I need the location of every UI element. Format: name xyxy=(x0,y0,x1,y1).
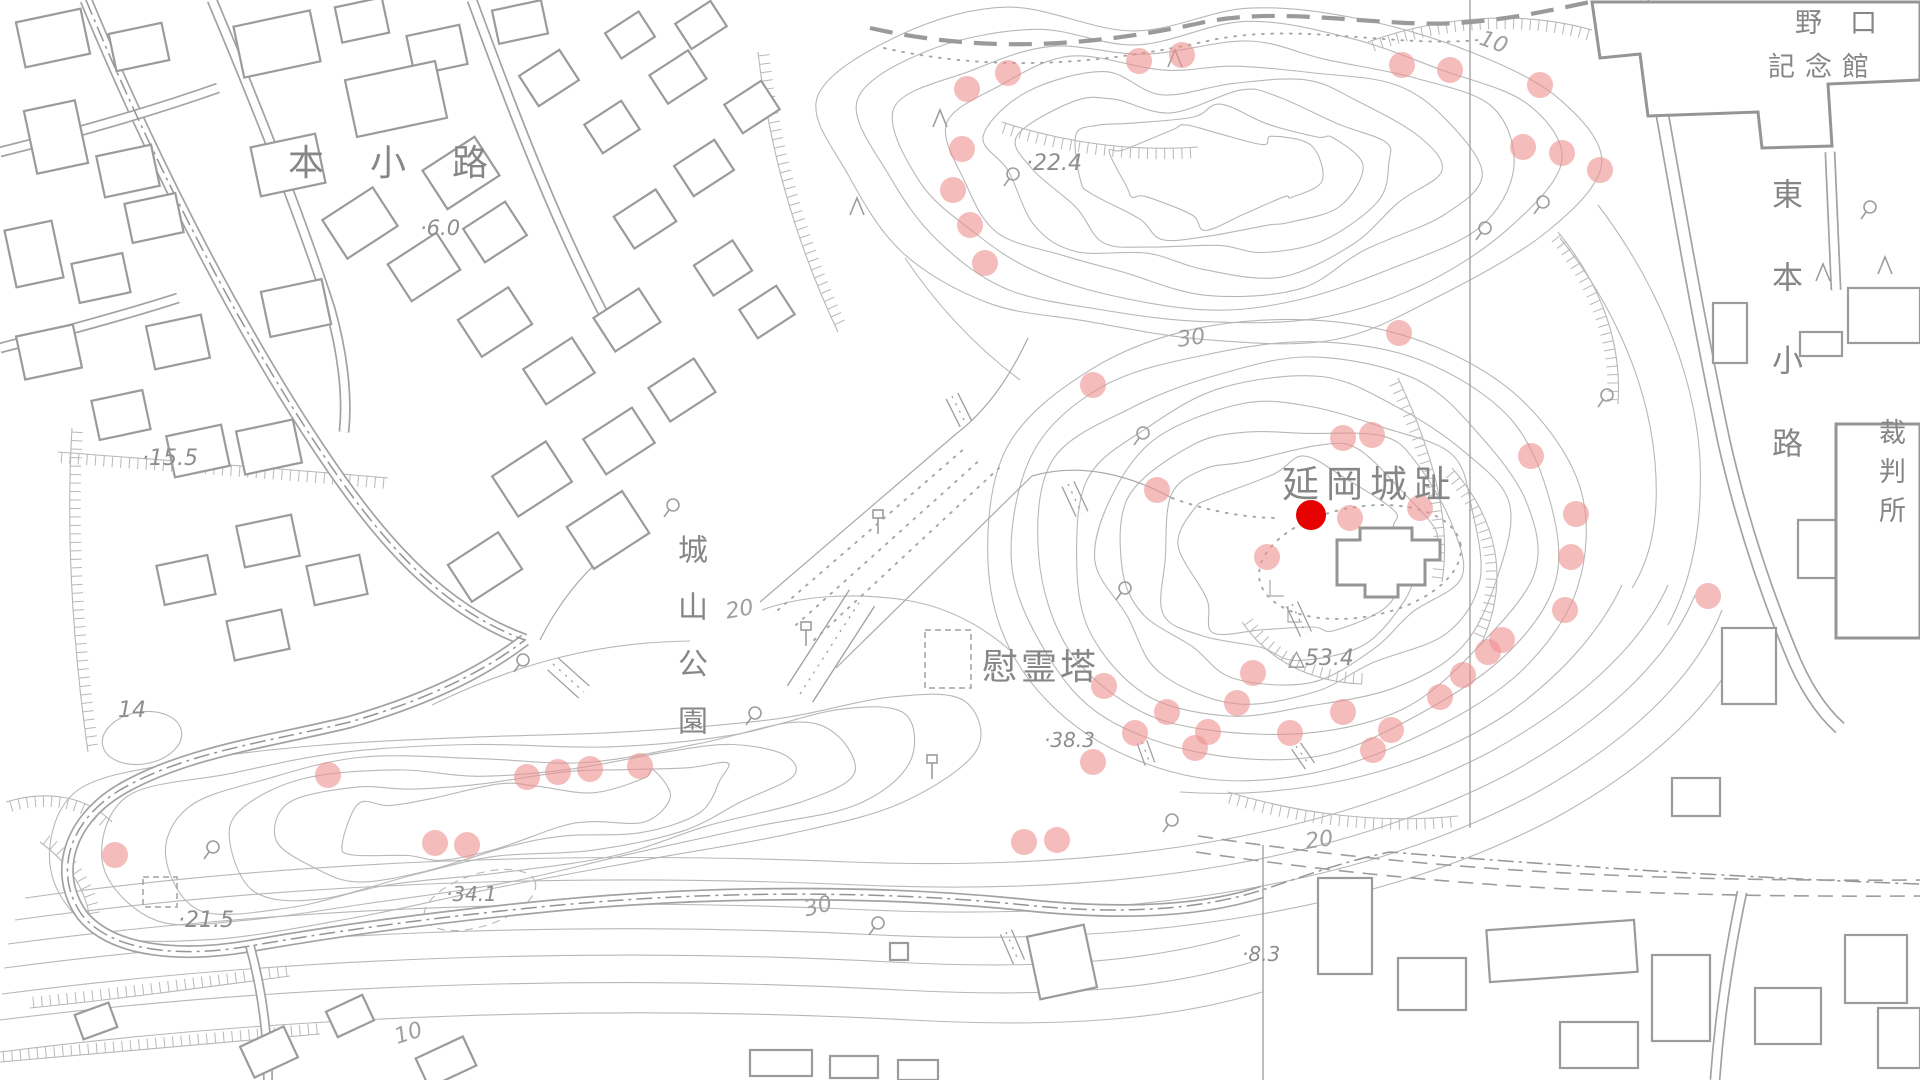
poi-dot[interactable] xyxy=(949,136,975,162)
poi-dot[interactable] xyxy=(1169,42,1195,68)
building xyxy=(1878,1008,1920,1068)
monument-symbol xyxy=(927,755,937,763)
building xyxy=(326,995,374,1037)
poi-dot[interactable] xyxy=(315,762,341,788)
building xyxy=(593,289,660,352)
building xyxy=(16,324,82,379)
poi-dot[interactable] xyxy=(972,250,998,276)
tree-symbol xyxy=(1816,264,1830,281)
building xyxy=(492,441,572,516)
building xyxy=(156,555,215,605)
topographic-map xyxy=(0,0,1920,1080)
building-saibansho xyxy=(1836,424,1920,638)
poi-dot[interactable] xyxy=(1389,52,1415,78)
building xyxy=(306,555,367,605)
well-symbol xyxy=(207,841,219,853)
building xyxy=(322,187,397,258)
well-symbol xyxy=(872,917,884,929)
building xyxy=(1672,778,1720,816)
building xyxy=(1560,1022,1638,1068)
poi-dot[interactable] xyxy=(1527,72,1553,98)
poi-dot[interactable] xyxy=(1437,57,1463,83)
poi-dot[interactable] xyxy=(1549,140,1575,166)
poi-dot[interactable] xyxy=(1080,749,1106,775)
poi-dot[interactable] xyxy=(422,830,448,856)
poi-dot[interactable] xyxy=(1254,544,1280,570)
building xyxy=(416,1037,477,1080)
building xyxy=(24,100,88,173)
building xyxy=(739,286,794,338)
monument-symbol xyxy=(801,622,811,630)
building xyxy=(584,101,639,153)
well-symbol xyxy=(1537,196,1549,208)
poi-dot[interactable] xyxy=(1330,425,1356,451)
building xyxy=(226,610,289,661)
building xyxy=(4,221,63,288)
building xyxy=(109,23,170,71)
building xyxy=(335,0,389,43)
building xyxy=(1027,925,1097,1000)
building xyxy=(96,145,160,198)
building xyxy=(1652,955,1710,1041)
poi-dot[interactable] xyxy=(1044,827,1070,853)
annotation-dots xyxy=(102,42,1721,868)
well-symbol xyxy=(1864,201,1876,213)
poi-dot[interactable] xyxy=(1360,737,1386,763)
well-symbol xyxy=(667,499,679,511)
building xyxy=(675,1,727,49)
poi-dot[interactable] xyxy=(1510,134,1536,160)
building xyxy=(448,532,522,602)
monument-symbol xyxy=(873,510,883,518)
boundary-lines xyxy=(67,0,1920,1080)
poi-dot[interactable] xyxy=(1195,719,1221,745)
poi-dot[interactable] xyxy=(940,177,966,203)
poi-dot[interactable] xyxy=(627,753,653,779)
building xyxy=(124,193,183,243)
tree-symbol xyxy=(850,198,864,215)
building xyxy=(251,134,326,197)
building xyxy=(1848,288,1920,343)
building xyxy=(567,491,650,569)
building xyxy=(261,279,331,337)
building xyxy=(1486,920,1637,982)
building xyxy=(1713,303,1747,363)
tree-symbol xyxy=(933,110,947,127)
building xyxy=(614,189,677,248)
well-symbol xyxy=(749,707,761,719)
building xyxy=(583,408,655,475)
poi-dot[interactable] xyxy=(1240,660,1266,686)
building xyxy=(523,338,595,405)
tree-symbol xyxy=(1878,257,1892,274)
poi-dot[interactable] xyxy=(454,832,480,858)
poi-dot[interactable] xyxy=(577,756,603,782)
poi-dot[interactable] xyxy=(1552,597,1578,623)
building xyxy=(898,1060,938,1080)
building xyxy=(1845,935,1907,1003)
building xyxy=(648,359,715,422)
selected-location-marker[interactable] xyxy=(1296,500,1326,530)
poi-dot[interactable] xyxy=(1558,544,1584,570)
stairs-symbol xyxy=(1068,484,1082,514)
building xyxy=(1318,878,1372,974)
building xyxy=(1755,988,1821,1044)
stairs-symbol xyxy=(1292,604,1306,634)
poi-dot[interactable] xyxy=(1359,422,1385,448)
poi-dot[interactable] xyxy=(1489,627,1515,653)
building xyxy=(233,10,320,77)
poi-dot[interactable] xyxy=(1695,583,1721,609)
poi-dot[interactable] xyxy=(102,842,128,868)
building xyxy=(236,515,300,568)
building xyxy=(694,240,752,295)
building xyxy=(166,425,230,478)
poi-dot[interactable] xyxy=(1518,443,1544,469)
well-symbol xyxy=(1166,814,1178,826)
poi-dot[interactable] xyxy=(1427,684,1453,710)
poi-dot[interactable] xyxy=(1091,673,1117,699)
poi-dot[interactable] xyxy=(1450,662,1476,688)
building xyxy=(91,390,150,440)
well-symbol xyxy=(517,654,529,666)
building xyxy=(71,253,130,303)
building xyxy=(422,137,499,209)
poi-dot[interactable] xyxy=(957,212,983,238)
building xyxy=(1800,332,1842,356)
poi-dot[interactable] xyxy=(1126,48,1152,74)
building xyxy=(146,315,210,370)
poi-dot[interactable] xyxy=(995,60,1021,86)
hachure-rim xyxy=(1228,792,1458,819)
building xyxy=(1798,520,1836,578)
building xyxy=(830,1056,878,1078)
poi-dot[interactable] xyxy=(1407,495,1433,521)
well-symbol xyxy=(1601,389,1613,401)
poi-dot[interactable] xyxy=(1080,372,1106,398)
well-symbol xyxy=(1479,222,1491,234)
building xyxy=(674,140,734,196)
poi-dot[interactable] xyxy=(1337,505,1363,531)
building xyxy=(1722,628,1776,704)
poi-dot[interactable] xyxy=(1330,699,1356,725)
building xyxy=(458,287,532,357)
building-castle-site xyxy=(1337,528,1440,597)
poi-dot[interactable] xyxy=(545,759,571,785)
building xyxy=(236,419,302,474)
building xyxy=(16,9,90,68)
poi-dot[interactable] xyxy=(1224,690,1250,716)
poi-dot[interactable] xyxy=(514,764,540,790)
poi-dot[interactable] xyxy=(1122,720,1148,746)
building xyxy=(75,1003,118,1040)
building xyxy=(388,233,461,301)
building xyxy=(649,50,706,104)
hachure-rim xyxy=(1002,122,1198,148)
poi-dot[interactable] xyxy=(954,76,980,102)
building xyxy=(890,943,908,960)
poi-dot[interactable] xyxy=(1277,720,1303,746)
building-noguchi-kinenkan xyxy=(1592,2,1920,148)
poi-dot[interactable] xyxy=(1378,717,1404,743)
poi-dot[interactable] xyxy=(1563,501,1589,527)
buildings xyxy=(4,0,1920,1080)
building xyxy=(750,1050,812,1076)
building xyxy=(345,61,447,137)
poi-dot[interactable] xyxy=(1144,477,1170,503)
poi-dot[interactable] xyxy=(1154,699,1180,725)
well-symbol xyxy=(1007,168,1019,180)
map-canvas: 本小路野口記念館東本小路裁判所城山公園延岡城趾慰霊塔·6.0·15.514·21… xyxy=(0,0,1920,1080)
building xyxy=(492,0,548,44)
poi-dot[interactable] xyxy=(1386,320,1412,346)
poi-dot[interactable] xyxy=(1011,829,1037,855)
stairs-symbol xyxy=(1296,746,1310,766)
building xyxy=(605,12,655,59)
stairs-symbol xyxy=(952,396,966,424)
stairs-symbol xyxy=(553,664,584,692)
hachure-rim xyxy=(1558,232,1619,404)
building xyxy=(463,202,527,263)
poi-dot[interactable] xyxy=(1587,157,1613,183)
building xyxy=(1398,958,1466,1010)
building xyxy=(519,50,579,106)
